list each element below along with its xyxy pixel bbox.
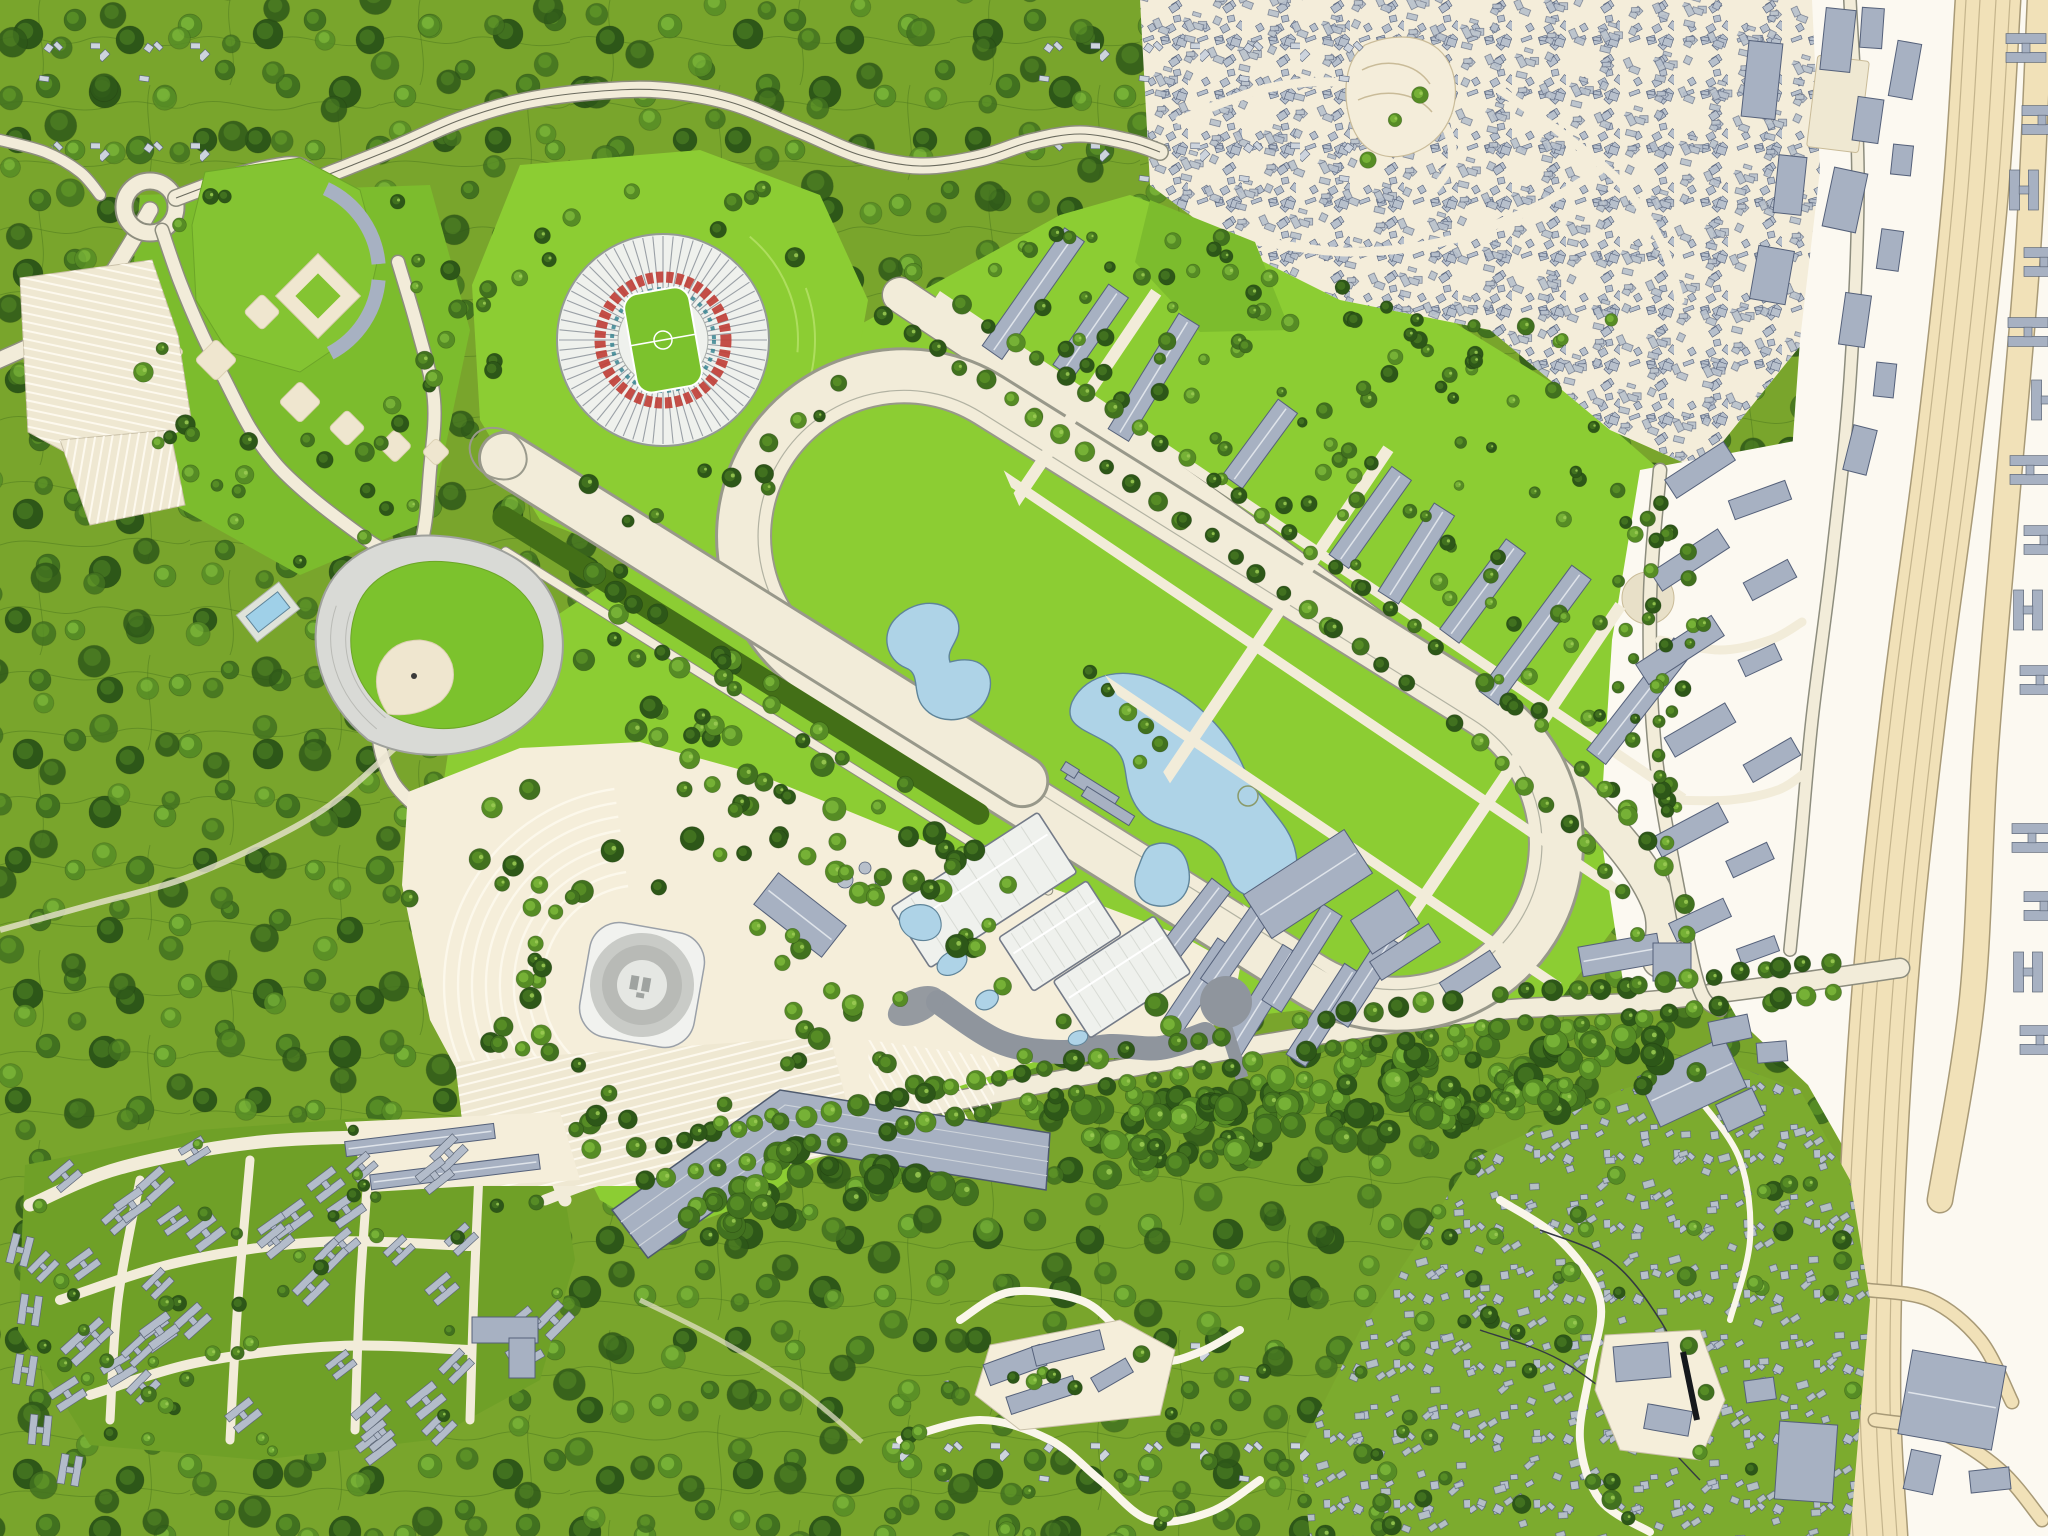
baseball-stadium [316, 536, 563, 755]
olympic-stadium [557, 234, 769, 446]
site-plan-map [0, 0, 2048, 1536]
site-plan-page [0, 0, 2048, 1536]
